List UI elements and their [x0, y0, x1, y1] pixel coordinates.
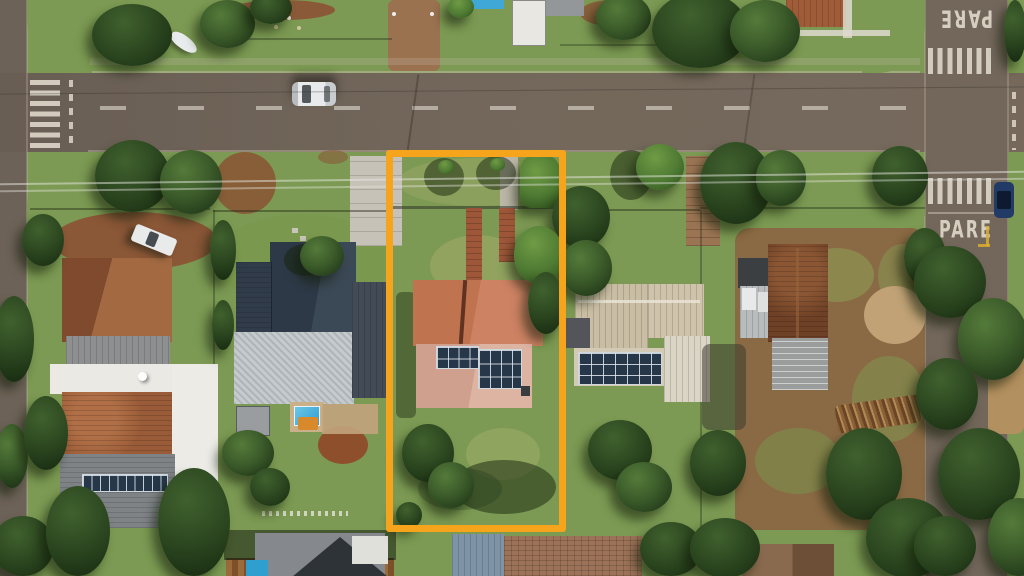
tree — [300, 236, 344, 276]
house-a-solar-array — [82, 474, 168, 492]
gate-post-2 — [430, 12, 434, 16]
white-wall-top-2 — [843, 0, 852, 38]
house-a-vent — [138, 372, 147, 381]
house-d-water-tank — [566, 318, 590, 348]
crosswalk-side-south — [928, 178, 996, 204]
house-a-white-column — [172, 364, 218, 482]
roof-bottom-tile — [504, 536, 642, 576]
pickup-cab-window — [145, 231, 160, 248]
curb-top — [88, 71, 920, 73]
crosswalk-side-north — [928, 48, 996, 74]
house-d-solar-array — [578, 352, 662, 385]
tree — [92, 4, 172, 66]
orange-item-b — [298, 417, 318, 430]
pool-bottom — [246, 560, 268, 576]
white-car-road — [292, 82, 336, 106]
boat-on-lawn — [168, 28, 200, 56]
stop-dashes-left — [69, 80, 73, 148]
tree — [616, 462, 672, 512]
yard-dot-4 — [297, 26, 301, 30]
house-f-ridge-v — [796, 248, 799, 338]
tree — [596, 0, 651, 40]
tree — [872, 146, 928, 206]
tree — [1004, 0, 1024, 62]
crosswalk-left — [30, 80, 60, 148]
pare-road-marking-top: PARE — [938, 6, 994, 30]
house-f-white-panel-1 — [742, 288, 756, 310]
roof-bottom-bluegray — [452, 534, 504, 576]
house-a-gray-strip — [66, 336, 170, 364]
tree — [914, 516, 976, 576]
white-building-top — [512, 0, 546, 46]
dirt-patch-verge — [214, 152, 276, 214]
gate-post-1 — [392, 12, 396, 16]
blue-car-side-street — [994, 182, 1014, 218]
yellow-curb-mark-h — [978, 244, 990, 247]
tree — [916, 358, 978, 430]
tree — [690, 430, 746, 496]
fence-line-lot-b — [213, 210, 391, 212]
corner-grass-ne-left — [27, 0, 92, 73]
yellow-curb-mark-v — [986, 226, 989, 246]
center-dashed-line — [100, 106, 910, 110]
tree — [95, 140, 170, 212]
blue-car-windows — [997, 191, 1011, 209]
stone-wall-speckled — [262, 511, 348, 516]
bush — [210, 220, 236, 280]
paver-pad-b — [322, 404, 378, 434]
tree — [448, 0, 474, 18]
lot-boundary-highlight — [386, 150, 566, 532]
stop-bar-south — [928, 212, 998, 214]
dirt-patch-verge-2 — [318, 150, 348, 164]
house-f-metal-lower — [772, 338, 828, 390]
gray-roof-top — [546, 0, 584, 16]
tree — [24, 396, 68, 470]
white-car-rear-window — [324, 86, 330, 102]
house-d-dark-drive — [702, 344, 746, 430]
sidewalk-north — [90, 58, 920, 65]
tree — [730, 0, 800, 62]
house-a-terracotta-upper — [62, 258, 172, 342]
tree — [756, 150, 806, 206]
tree — [0, 296, 34, 382]
tree — [46, 486, 110, 576]
curb-left-street — [26, 0, 28, 576]
stop-dashes-right — [1012, 92, 1016, 150]
tree — [690, 518, 760, 576]
bush — [212, 300, 234, 350]
aerial-photo: PARE PARE — [0, 0, 1024, 576]
tree — [250, 0, 292, 24]
stepping-stone-1 — [292, 228, 298, 233]
tree — [560, 240, 612, 296]
tree — [250, 468, 290, 506]
house-a-terracotta-lower — [62, 392, 172, 456]
roof-bottom-white-slab — [352, 536, 388, 564]
house-d-ridge-cap — [578, 300, 700, 303]
tree — [200, 0, 255, 48]
house-b-white-roof — [234, 332, 354, 404]
tree — [22, 214, 64, 266]
tree — [158, 468, 230, 576]
main-road — [0, 73, 1024, 152]
house-d-roof-upper-right — [648, 284, 704, 338]
stepping-stone-2 — [300, 236, 306, 241]
yard-dot-2 — [274, 25, 278, 29]
white-car-windshield — [302, 85, 311, 103]
